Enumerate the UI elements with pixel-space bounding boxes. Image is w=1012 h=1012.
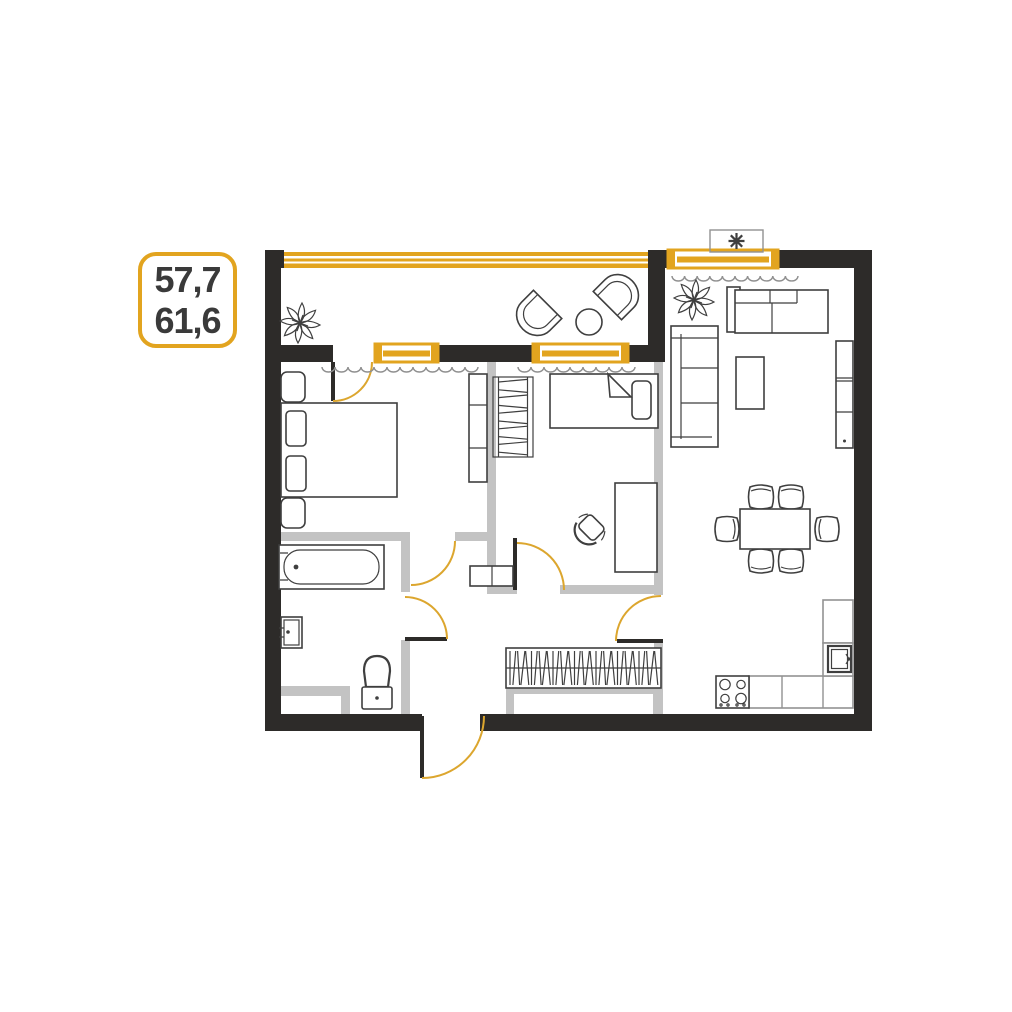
wall-bottom-right bbox=[480, 714, 872, 731]
door-living-arc bbox=[616, 596, 661, 641]
dining-chair bbox=[715, 517, 739, 542]
door-bathroom-arc bbox=[405, 597, 447, 639]
door-balcony bbox=[331, 362, 372, 401]
wall-balcony-bottom-a bbox=[265, 345, 333, 362]
ac-star-icon bbox=[729, 233, 745, 249]
curtain-bedroom2 bbox=[518, 367, 635, 372]
wall-bottom-left bbox=[265, 714, 422, 731]
balcony-glazing bbox=[284, 252, 648, 268]
hallway-wardrobe bbox=[506, 648, 661, 688]
kitchen bbox=[716, 600, 853, 708]
dining-chair bbox=[779, 485, 804, 509]
living-room bbox=[671, 230, 853, 708]
balcony-side-table bbox=[576, 309, 602, 335]
dining-table bbox=[740, 509, 810, 549]
corner-sofa bbox=[727, 287, 828, 333]
stove bbox=[716, 676, 749, 708]
door-balcony-arc bbox=[333, 362, 372, 401]
door-living-leaf bbox=[617, 639, 663, 643]
wardrobe-niche-left bbox=[506, 694, 514, 714]
door-bedroom1-arc bbox=[411, 541, 455, 585]
nightstand bbox=[281, 372, 305, 402]
door-entrance-arc bbox=[422, 716, 484, 778]
door-bedroom1 bbox=[411, 541, 455, 585]
partition-toilet-nook-v bbox=[341, 686, 350, 714]
dining-chair bbox=[749, 485, 774, 509]
door-bedroom2 bbox=[513, 538, 564, 590]
partition-bedroom1-bath bbox=[281, 532, 410, 541]
window-bedroom1 bbox=[375, 343, 438, 363]
double-bed bbox=[281, 403, 397, 497]
desk bbox=[615, 483, 657, 572]
floor-plan-page: 57,7 61,6 bbox=[0, 0, 1012, 1012]
partition-bedroom2-hall-b bbox=[560, 585, 655, 594]
door-living bbox=[616, 596, 663, 643]
pillow bbox=[286, 456, 306, 491]
wardrobe bbox=[469, 374, 487, 482]
wall-balcony-bottom-b bbox=[438, 345, 533, 362]
shelf-rack bbox=[493, 377, 533, 457]
dining-chair bbox=[815, 517, 839, 542]
door-bathroom bbox=[405, 597, 447, 641]
balcony bbox=[280, 267, 646, 344]
kitchen-cabinet bbox=[823, 600, 853, 643]
pillow bbox=[286, 411, 306, 446]
wall-balcony-bottom-c bbox=[628, 345, 665, 362]
kitchen-sink bbox=[823, 643, 853, 676]
curtain-living bbox=[672, 276, 798, 281]
wall-left bbox=[265, 250, 281, 731]
coffee-table bbox=[736, 357, 764, 409]
curtain-bedroom1 bbox=[322, 367, 478, 372]
corner-cabinet bbox=[470, 566, 513, 586]
pillow bbox=[632, 381, 651, 419]
plant-icon bbox=[280, 303, 320, 343]
door-entrance-leaf bbox=[420, 716, 424, 778]
door-entrance bbox=[420, 716, 484, 778]
wall-right bbox=[854, 250, 872, 731]
door-bedroom2-arc bbox=[517, 543, 564, 590]
hallway bbox=[506, 648, 661, 688]
door-bathroom-leaf bbox=[405, 637, 447, 641]
dining-chair bbox=[779, 549, 804, 573]
balcony-armchair-2 bbox=[593, 267, 646, 320]
window-bedroom2 bbox=[533, 343, 628, 363]
nightstand bbox=[281, 498, 305, 528]
dining-set bbox=[715, 485, 839, 573]
wardrobe-niche-right bbox=[653, 694, 661, 714]
toilet bbox=[362, 656, 392, 709]
wall-top-left-corner bbox=[265, 250, 284, 268]
partition-bath-right-upper bbox=[401, 532, 410, 592]
office-chair bbox=[568, 510, 610, 552]
kitchen-counter-bottom bbox=[749, 676, 853, 708]
dining-chair bbox=[749, 549, 774, 573]
plant-icon bbox=[674, 280, 714, 320]
tv-stand bbox=[836, 341, 853, 448]
balcony-armchair-1 bbox=[509, 290, 562, 343]
partition-bedroom1-hall bbox=[455, 532, 496, 541]
partition-bath-right-lower bbox=[401, 640, 410, 714]
partition-toilet-nook-h bbox=[281, 686, 350, 696]
bathroom bbox=[279, 545, 392, 709]
bathtub bbox=[279, 545, 384, 589]
wash-basin bbox=[279, 617, 302, 648]
single-bed bbox=[550, 374, 658, 428]
sofa bbox=[671, 326, 718, 447]
floor-plan-drawing bbox=[0, 0, 1012, 1012]
